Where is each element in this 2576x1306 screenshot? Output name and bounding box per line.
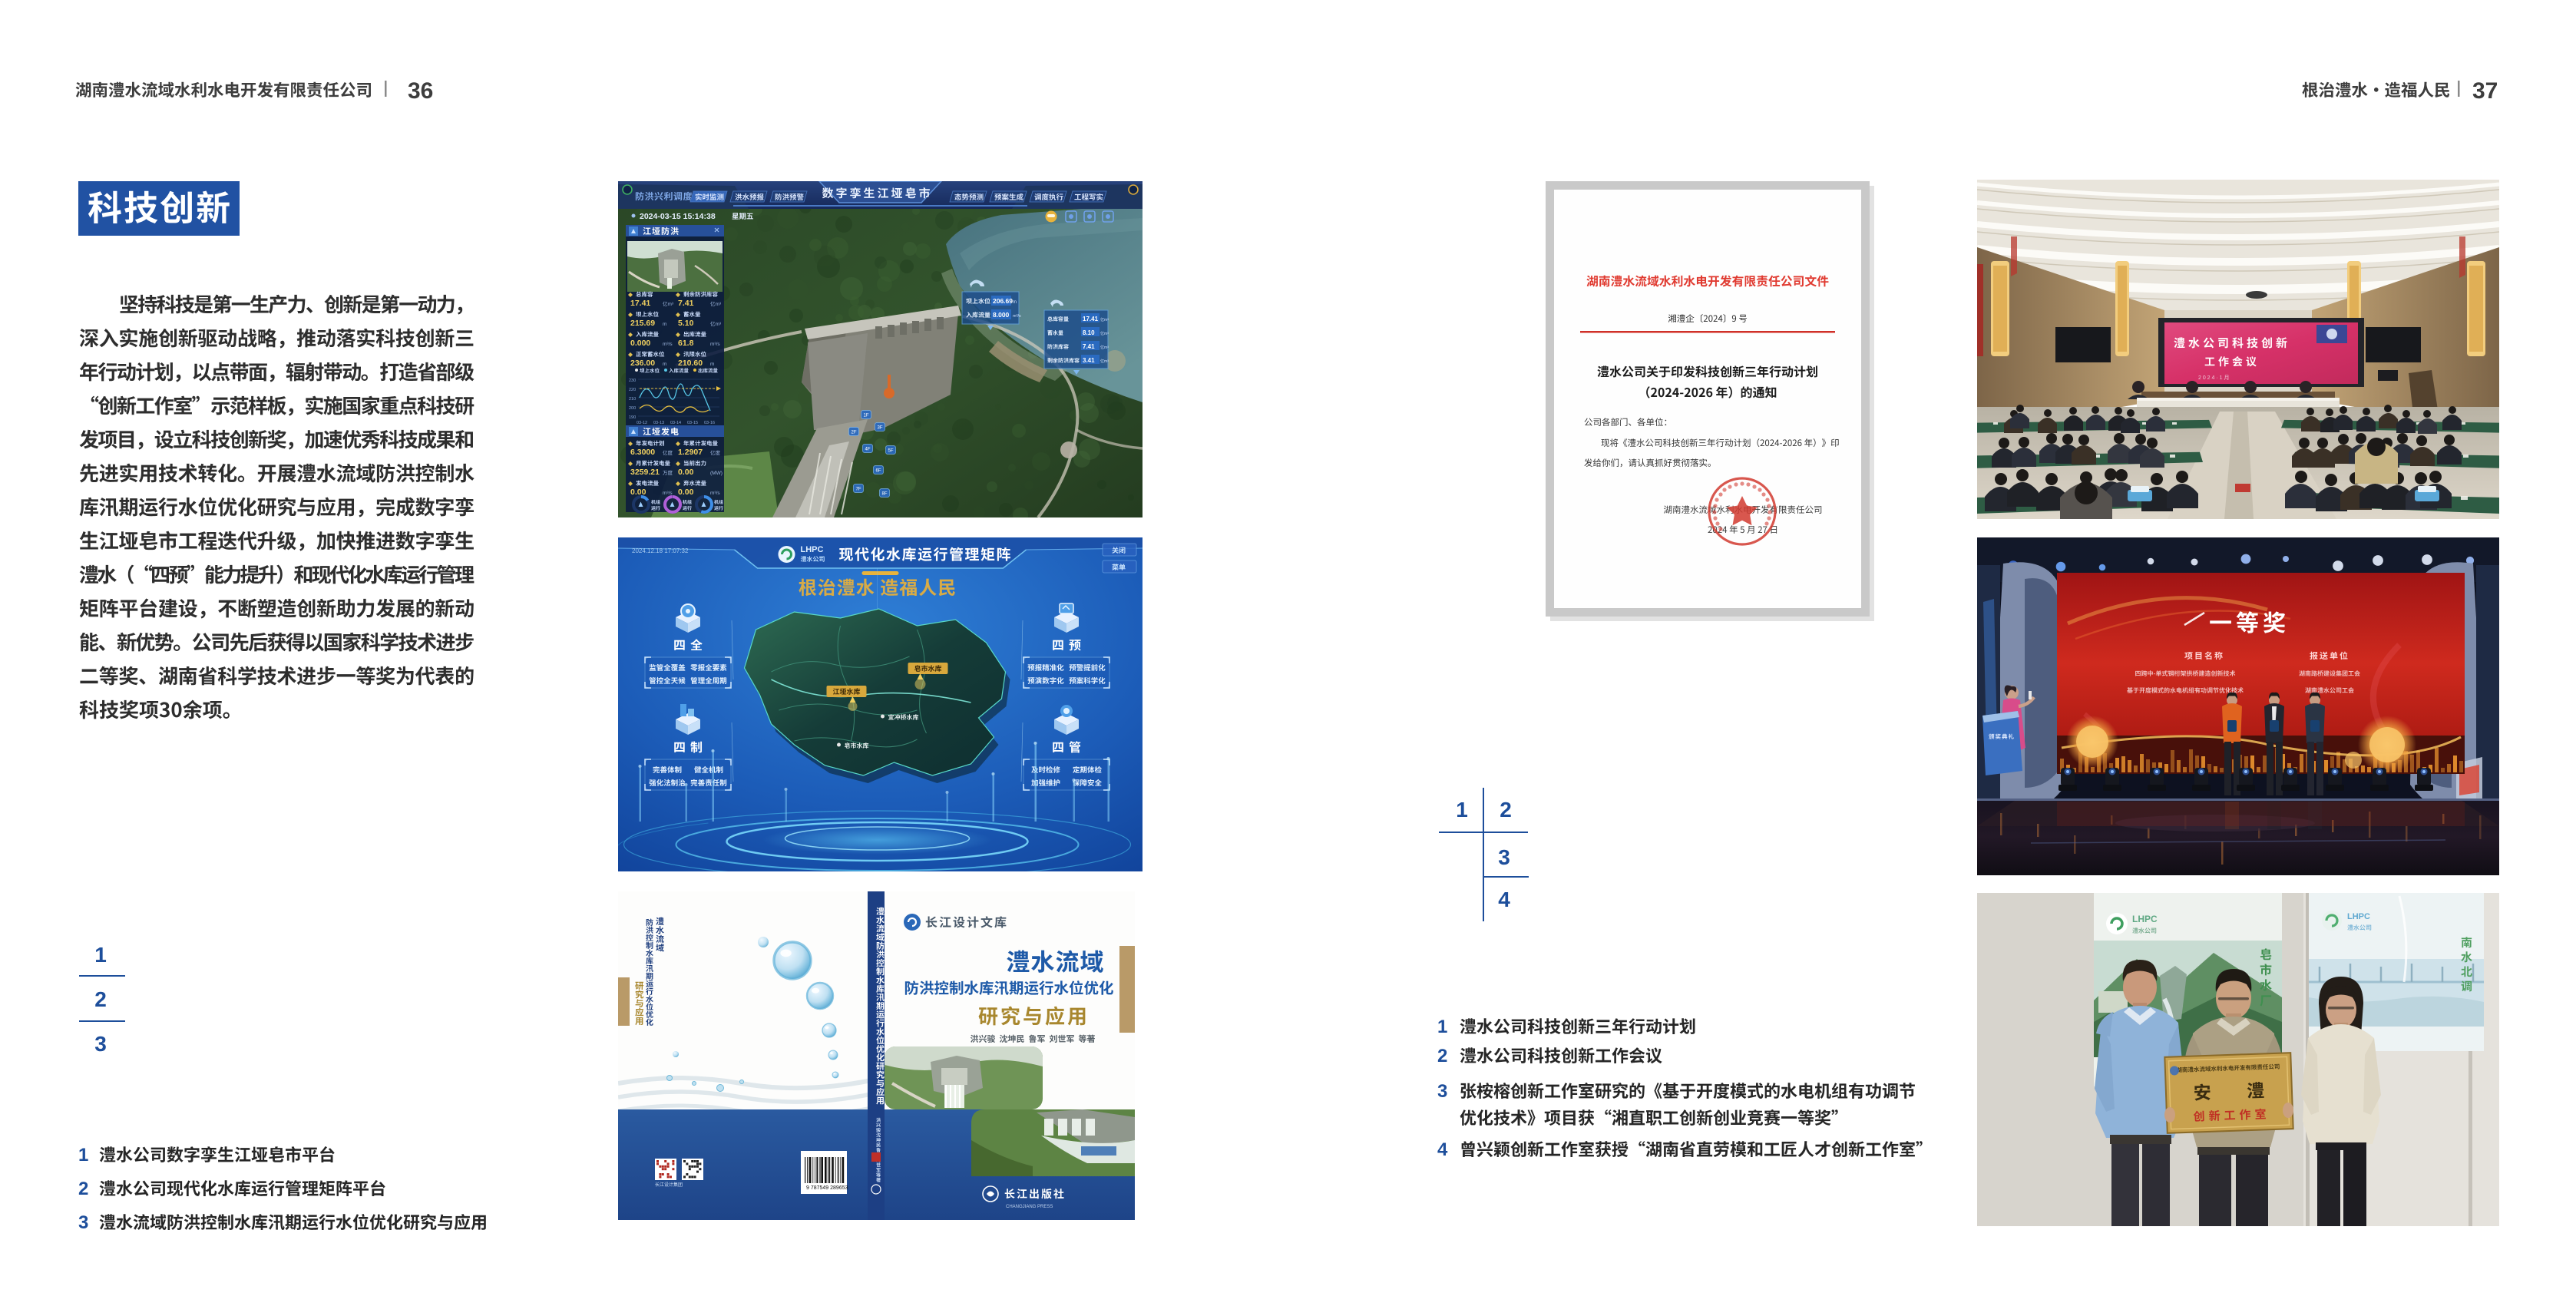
svg-text:7F: 7F <box>855 488 861 492</box>
svg-text:0.00: 0.00 <box>678 488 694 497</box>
svg-text:5F: 5F <box>888 449 893 454</box>
svg-text:7.41: 7.41 <box>1083 343 1095 350</box>
svg-text:LHPC: LHPC <box>2347 912 2370 921</box>
svg-text:8F: 8F <box>881 492 887 497</box>
svg-text:2: 2 <box>1500 798 1512 822</box>
svg-text:0.00: 0.00 <box>630 488 646 497</box>
svg-text:m³/s: m³/s <box>663 491 673 496</box>
svg-text:37: 37 <box>2472 78 2498 104</box>
svg-text:200: 200 <box>629 406 636 411</box>
svg-text:m: m <box>710 362 714 367</box>
svg-text:03-13: 03-13 <box>653 421 664 425</box>
svg-text:2F: 2F <box>851 431 856 435</box>
svg-text:190: 190 <box>629 415 636 420</box>
svg-text:210.60: 210.60 <box>678 359 703 368</box>
svg-text:2 0 2 4 · 1 月: 2 0 2 4 · 1 月 <box>2198 375 2229 381</box>
svg-text:2024.12.18 17:07:32: 2024.12.18 17:07:32 <box>632 547 689 554</box>
svg-text:m³/s: m³/s <box>710 342 720 347</box>
svg-text:0.000: 0.000 <box>630 339 650 348</box>
svg-text:3F: 3F <box>877 426 882 431</box>
svg-text:LHPC: LHPC <box>2132 914 2158 924</box>
svg-text:2024-03-15 15:14:38: 2024-03-15 15:14:38 <box>640 212 716 221</box>
svg-text:长江设计集团: 长江设计集团 <box>655 1182 683 1188</box>
svg-text:8.10: 8.10 <box>1083 329 1095 336</box>
svg-text:210: 210 <box>629 397 636 402</box>
svg-text:1: 1 <box>94 943 107 967</box>
svg-text:2: 2 <box>94 987 107 1011</box>
svg-text:236.00: 236.00 <box>630 359 655 368</box>
svg-text:1F: 1F <box>863 414 868 418</box>
svg-text:亿度: 亿度 <box>710 449 721 456</box>
svg-text:4: 4 <box>1498 888 1510 911</box>
svg-text:m³/s: m³/s <box>710 491 720 496</box>
svg-text:0.00: 0.00 <box>678 468 694 477</box>
svg-text:03-16: 03-16 <box>704 421 715 425</box>
svg-text:3: 3 <box>78 1212 88 1233</box>
svg-text:220: 220 <box>629 388 636 392</box>
svg-text:7.41: 7.41 <box>678 299 694 308</box>
svg-text:万度: 万度 <box>663 469 673 476</box>
svg-text:36: 36 <box>408 78 433 104</box>
svg-text:m: m <box>663 322 666 327</box>
svg-text:03-14: 03-14 <box>670 421 681 425</box>
svg-text:9 787549 289653: 9 787549 289653 <box>806 1185 848 1191</box>
svg-text:1: 1 <box>1437 1017 1447 1037</box>
svg-text:03-12: 03-12 <box>637 421 647 425</box>
svg-text:3: 3 <box>94 1032 107 1056</box>
svg-text:206.69: 206.69 <box>993 297 1013 305</box>
svg-text:3259.21: 3259.21 <box>630 468 660 477</box>
svg-text:亿m³: 亿m³ <box>710 300 722 307</box>
svg-text:m³/s: m³/s <box>663 342 673 347</box>
svg-text:17.41: 17.41 <box>1083 316 1099 322</box>
svg-text:CHANGJIANG PRESS: CHANGJIANG PRESS <box>1006 1205 1053 1209</box>
svg-text:6.3000: 6.3000 <box>630 448 655 457</box>
svg-text:3.41: 3.41 <box>1083 357 1095 364</box>
svg-text:1.2907: 1.2907 <box>678 448 703 457</box>
svg-text:61.8: 61.8 <box>678 339 694 348</box>
svg-text:1: 1 <box>78 1145 88 1165</box>
svg-text:2: 2 <box>1437 1046 1447 1066</box>
svg-text:1: 1 <box>1456 798 1468 822</box>
svg-text:215.69: 215.69 <box>630 319 655 328</box>
svg-text:4: 4 <box>1437 1139 1448 1160</box>
svg-text:m³/s: m³/s <box>1013 314 1021 319</box>
svg-text:m: m <box>1013 300 1017 305</box>
svg-text:亿m³: 亿m³ <box>710 320 722 327</box>
svg-text:230: 230 <box>629 379 636 383</box>
svg-text:5.10: 5.10 <box>678 319 694 328</box>
svg-text:2: 2 <box>78 1179 88 1199</box>
svg-text:(MW): (MW) <box>710 471 723 476</box>
svg-text:3: 3 <box>1437 1081 1447 1102</box>
svg-text:6F: 6F <box>875 469 881 474</box>
svg-text:亿m³: 亿m³ <box>1100 359 1109 364</box>
svg-text:亿m³: 亿m³ <box>1100 331 1109 336</box>
svg-text:亿m³: 亿m³ <box>1100 345 1109 350</box>
svg-text:8.000: 8.000 <box>993 311 1010 319</box>
svg-text:4F: 4F <box>865 448 870 452</box>
svg-text:m: m <box>663 362 666 367</box>
svg-text:亿m³: 亿m³ <box>663 300 674 307</box>
svg-text:3: 3 <box>1498 845 1510 869</box>
svg-text:亿度: 亿度 <box>663 449 673 456</box>
svg-text:亿m³: 亿m³ <box>1100 317 1109 322</box>
svg-text:LHPC: LHPC <box>801 545 824 554</box>
svg-text:03-15: 03-15 <box>687 421 698 425</box>
svg-text:17.41: 17.41 <box>630 299 650 308</box>
